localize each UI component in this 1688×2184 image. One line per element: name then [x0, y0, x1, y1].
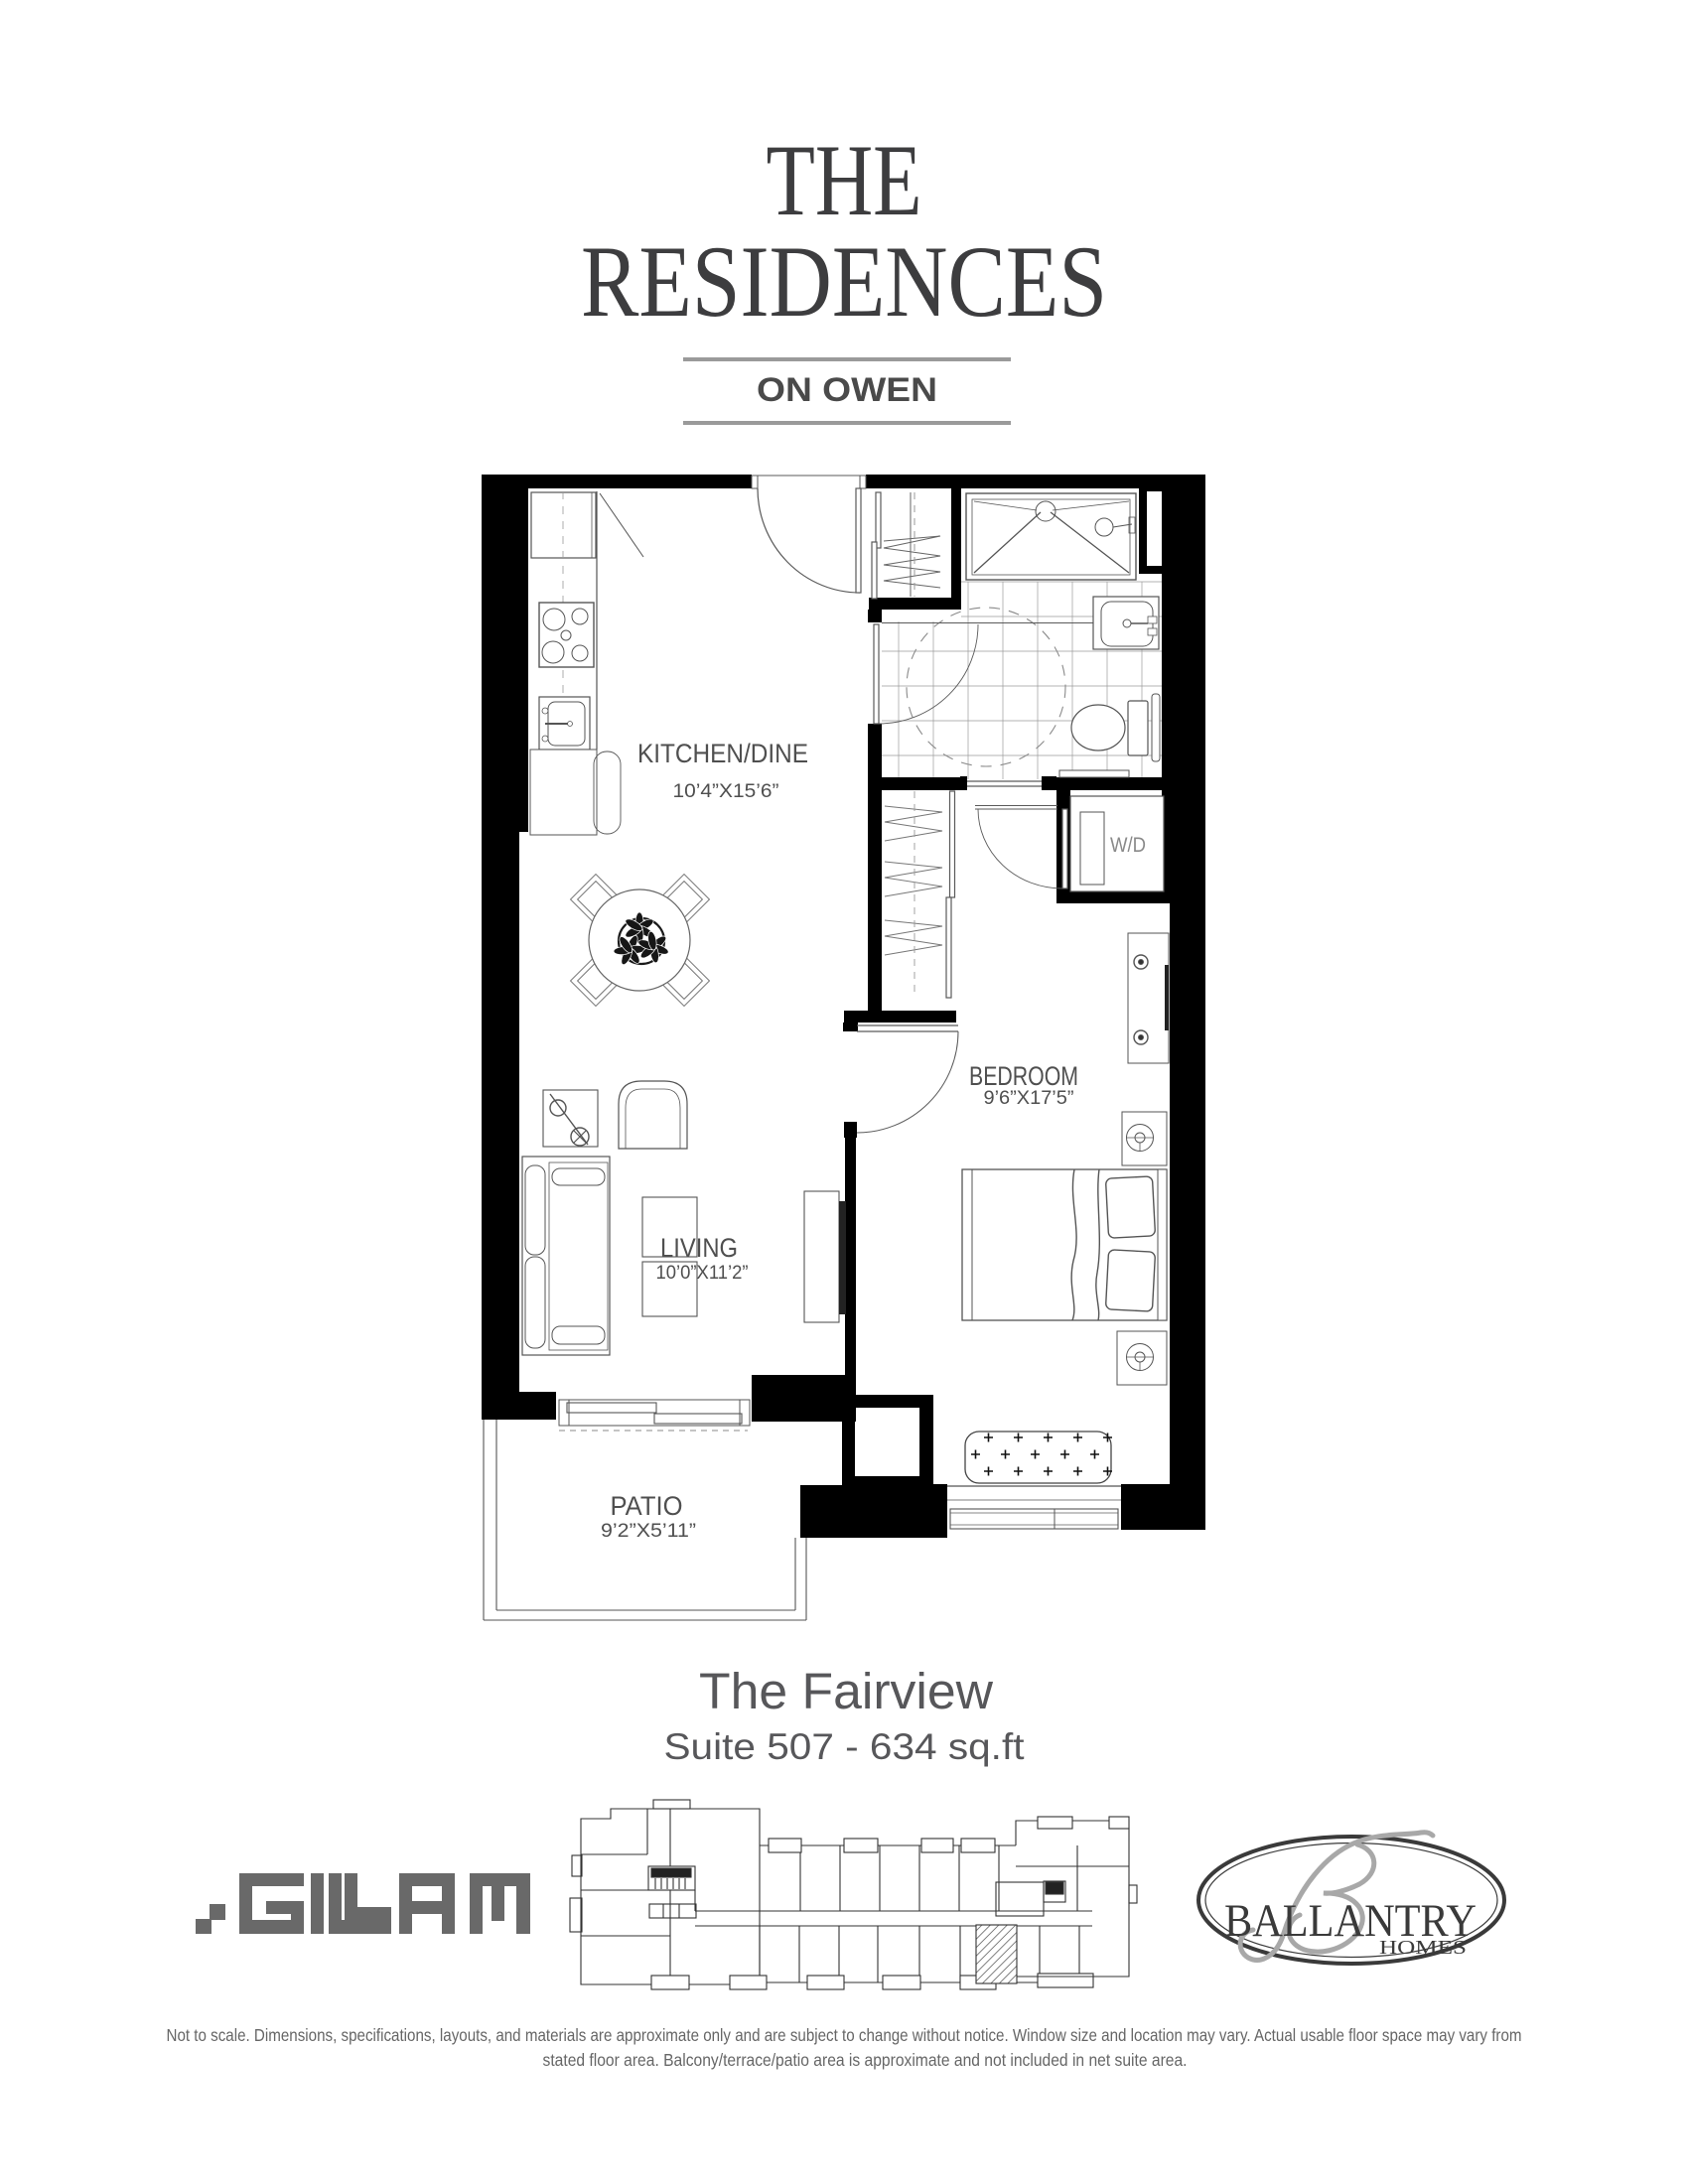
svg-text:BEDROOM: BEDROOM [969, 1061, 1078, 1091]
svg-text:HOMES: HOMES [1379, 1937, 1467, 1959]
svg-text:PATIO: PATIO [611, 1491, 683, 1521]
svg-text:W/D: W/D [1110, 834, 1146, 857]
svg-text:RESIDENCES: RESIDENCES [581, 225, 1107, 339]
svg-text:stated floor area. Balcony/ter: stated floor area. Balcony/terrace/patio… [543, 2050, 1188, 2070]
svg-text:LIVING: LIVING [660, 1233, 738, 1263]
svg-text:The Fairview: The Fairview [699, 1663, 993, 1719]
svg-text:10’0”X11’2”: 10’0”X11’2” [656, 1263, 749, 1284]
svg-text:Suite 507 - 634 sq.ft: Suite 507 - 634 sq.ft [664, 1726, 1026, 1767]
svg-text:THE: THE [767, 124, 922, 237]
svg-text:ON OWEN: ON OWEN [757, 371, 937, 409]
svg-text:KITCHEN/DINE: KITCHEN/DINE [637, 739, 808, 768]
svg-text:9’6”X17’5”: 9’6”X17’5” [984, 1088, 1074, 1109]
svg-text:10’4”X15’6”: 10’4”X15’6” [673, 781, 779, 802]
svg-text:Not to scale. Dimensions, spec: Not to scale. Dimensions, specifications… [167, 2025, 1522, 2045]
svg-text:9’2”X5’11”: 9’2”X5’11” [601, 1521, 696, 1542]
